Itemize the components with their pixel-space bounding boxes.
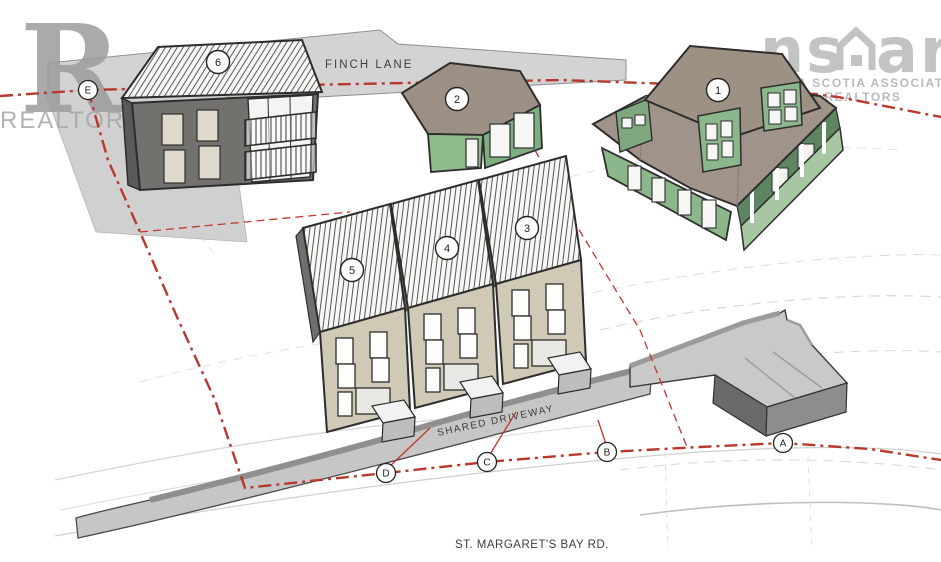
window: [768, 93, 780, 107]
building-1-dormer-left: [698, 108, 741, 172]
st-margarets-bay-rd-label: ST. MARGARET'S BAY RD.: [455, 539, 609, 551]
door: [426, 368, 440, 392]
window: [514, 113, 534, 148]
door: [466, 139, 478, 167]
window: [514, 316, 531, 340]
window: [424, 314, 441, 340]
window: [707, 144, 718, 160]
window: [460, 334, 477, 358]
marker-c: C: [483, 458, 490, 469]
finch-lane-label: FINCH LANE: [325, 59, 413, 71]
window: [769, 110, 781, 124]
door: [514, 344, 528, 368]
window: [426, 340, 443, 364]
building-3-number: 3: [524, 223, 530, 235]
site-plan-image: R ® REALTOR® ns ar NOVA SCOTIA ASSOCIATI…: [0, 0, 941, 562]
marker-b: B: [604, 448, 611, 459]
window: [372, 358, 389, 382]
building-1-number: 1: [715, 85, 721, 97]
building-1-dormer-right: [761, 82, 802, 131]
window: [678, 190, 691, 215]
marker-a: A: [780, 439, 787, 450]
window: [338, 364, 355, 388]
window: [162, 114, 183, 145]
window: [635, 115, 645, 125]
window: [458, 308, 475, 334]
parking-pad: [630, 310, 847, 436]
window: [336, 338, 353, 364]
window: [548, 310, 565, 334]
window: [512, 290, 529, 316]
marker-e: E: [85, 86, 92, 97]
window: [546, 284, 563, 310]
window: [721, 121, 732, 137]
window: [652, 178, 665, 202]
building-2: [402, 63, 542, 172]
building-2-number: 2: [454, 94, 460, 106]
window: [706, 124, 717, 140]
building-4-number: 4: [444, 243, 450, 255]
window: [490, 124, 510, 157]
door: [702, 200, 716, 228]
door: [338, 392, 352, 416]
window: [784, 90, 796, 104]
window: [197, 110, 218, 141]
window: [622, 118, 632, 128]
nsar-house-door: [851, 55, 862, 66]
building-5-number: 5: [349, 265, 355, 277]
window: [370, 332, 387, 358]
building-6-number: 6: [215, 57, 221, 69]
window: [164, 150, 185, 183]
window: [628, 166, 641, 190]
window: [722, 141, 733, 157]
window: [785, 107, 797, 121]
window: [199, 146, 220, 179]
marker-d: D: [382, 469, 389, 480]
site-plan-svg: R ® REALTOR® ns ar NOVA SCOTIA ASSOCIATI…: [0, 0, 941, 562]
